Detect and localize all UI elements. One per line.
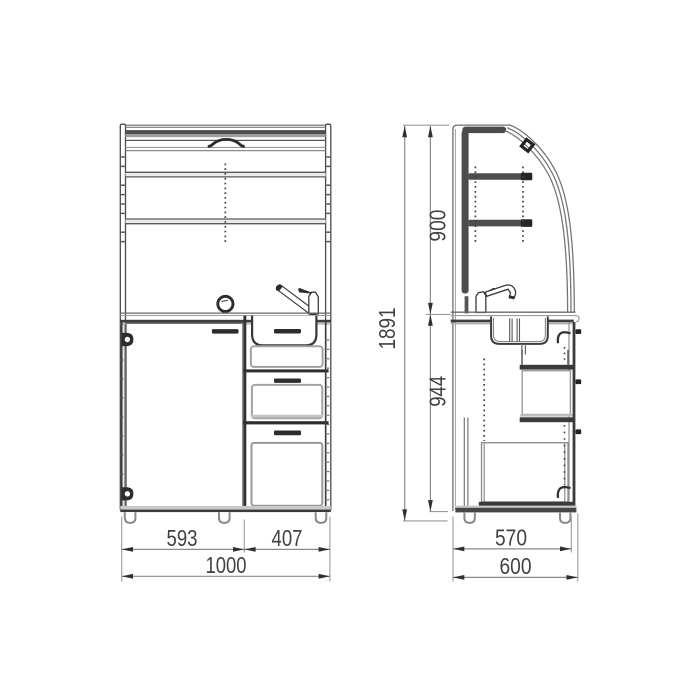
svg-text:570: 570: [495, 525, 527, 551]
svg-text:1891: 1891: [374, 308, 400, 350]
svg-text:407: 407: [272, 525, 303, 551]
svg-text:593: 593: [167, 525, 198, 551]
svg-text:600: 600: [500, 553, 532, 579]
svg-text:1000: 1000: [206, 552, 247, 578]
svg-text:900: 900: [425, 210, 451, 242]
svg-text:944: 944: [425, 376, 451, 407]
